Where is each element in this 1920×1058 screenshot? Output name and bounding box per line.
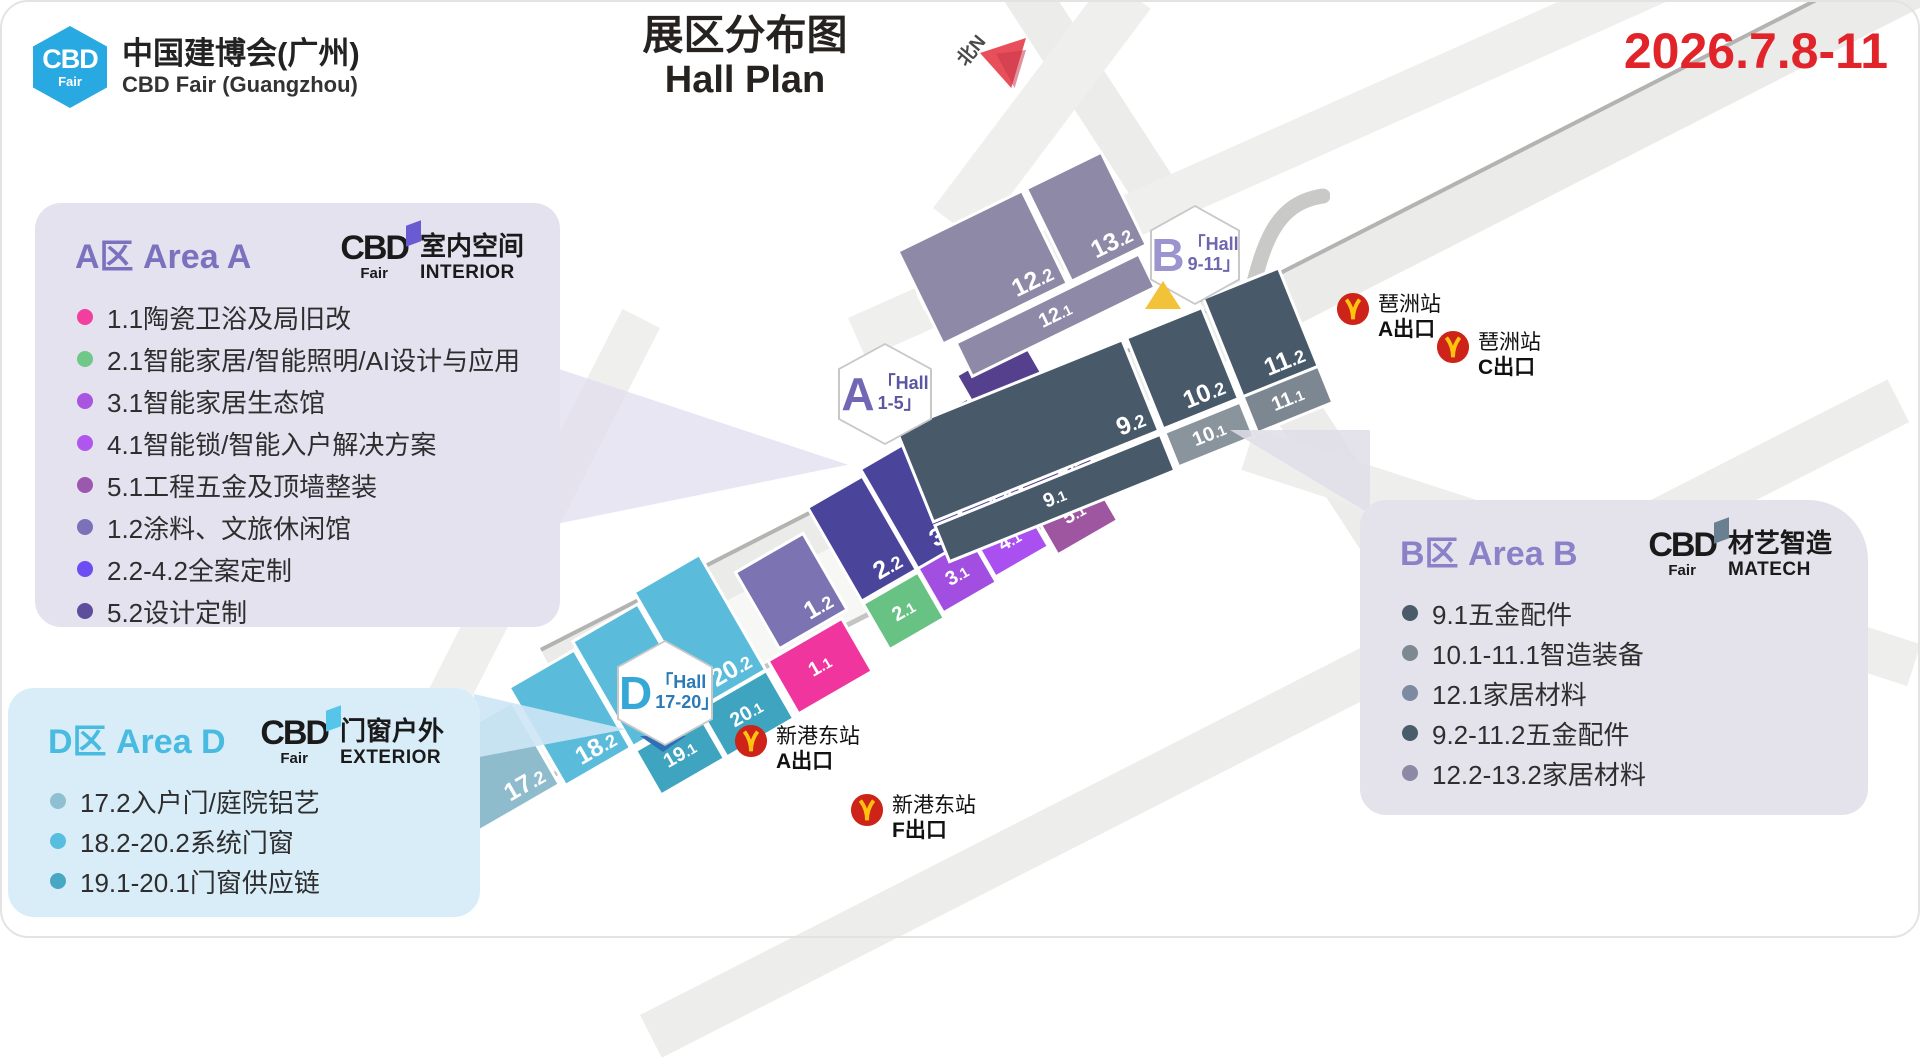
legend-list-area-a: 1.1陶瓷卫浴及局旧改2.1智能家居/智能照明/AI设计与应用3.1智能家居生态… xyxy=(35,290,560,632)
legend-label: 17.2入户门/庭院铝艺 xyxy=(80,783,320,820)
metro-icon xyxy=(850,793,884,827)
hall-label: 9.2 xyxy=(1113,407,1149,441)
brand-name-cn: 中国建博会(广州) xyxy=(122,36,360,72)
legend-dot-icon xyxy=(50,873,66,889)
badge-hall-a: A 「Hall 1-5」 xyxy=(838,343,932,445)
legend-item: 10.1-11.1智造装备 xyxy=(1402,633,1858,673)
station-name: 新港东站 xyxy=(892,793,976,818)
legend-dot-icon xyxy=(1402,765,1418,781)
hexagon-icon: A 「Hall 1-5」 xyxy=(838,343,932,445)
badge-hall-line2: 17-20」 xyxy=(655,693,711,713)
legend-item: 5.2设计定制 xyxy=(77,590,550,632)
legend-item: 12.1家居材料 xyxy=(1402,673,1858,713)
cbd-fair-text: Fair xyxy=(340,265,408,282)
sector-name-cn: 室内空间 xyxy=(420,231,524,262)
legend-item: 3.1智能家居生态馆 xyxy=(77,380,550,422)
cbd-fair-logo: CBD Fair xyxy=(33,26,107,108)
logo-fair-text: Fair xyxy=(58,75,82,88)
interior-logo: CBD Fair 室内空间 INTERIOR xyxy=(340,231,524,284)
station-exit: C出口 xyxy=(1478,355,1541,380)
hall-label: 10.1 xyxy=(1190,419,1229,450)
hall-label: 10.2 xyxy=(1180,374,1229,413)
metro-icon xyxy=(734,724,768,758)
legend-dot-icon xyxy=(77,603,93,619)
badge-hall-line1: 「Hall xyxy=(878,374,929,394)
brand-block: 中国建博会(广州) CBD Fair (Guangzhou) xyxy=(122,36,360,98)
legend-item: 17.2入户门/庭院铝艺 xyxy=(50,781,470,821)
legend-item: 19.1-20.1门窗供应链 xyxy=(50,861,470,901)
area-a-pointer-wedge xyxy=(556,368,848,524)
legend-label: 2.2-4.2全案定制 xyxy=(107,551,292,588)
legend-item: 9.2-11.2五金配件 xyxy=(1402,713,1858,753)
hall-label: 17.2 xyxy=(500,763,550,806)
sector-name-en: INTERIOR xyxy=(420,262,524,284)
logo-cbd-text: CBD xyxy=(42,46,98,73)
hall-label: 13.2 xyxy=(1087,222,1136,263)
legend-label: 5.1工程五金及顶墙整装 xyxy=(107,467,377,504)
legend-label: 18.2-20.2系统门窗 xyxy=(80,823,294,860)
panel-title: A区 Area A xyxy=(75,229,251,278)
hall-label: 2.1 xyxy=(889,596,919,625)
legend-dot-icon xyxy=(77,393,93,409)
legend-dot-icon xyxy=(77,519,93,535)
legend-label: 9.2-11.2五金配件 xyxy=(1432,715,1629,752)
flag-icon xyxy=(406,220,421,246)
hall-label: 12.1 xyxy=(1036,299,1076,332)
hall-label: 12.2 xyxy=(1008,261,1057,302)
badge-hall-line2: 1-5」 xyxy=(878,394,929,414)
panel-title: D区 Area D xyxy=(48,714,226,763)
badge-hall-d: D 「Hall 17-20」 xyxy=(617,640,713,746)
badge-hall-line2: 9-11」 xyxy=(1188,255,1239,275)
sector-name-cn: 门窗户外 xyxy=(340,716,444,747)
hall-label: 1.1 xyxy=(805,652,835,681)
legend-item: 1.2涂料、文旅休闲馆 xyxy=(77,506,550,548)
legend-item: 12.2-13.2家居材料 xyxy=(1402,753,1858,793)
page-title: 展区分布图 Hall Plan xyxy=(530,12,960,102)
event-date: 2026.7.8-11 xyxy=(1624,22,1888,80)
legend-label: 1.1陶瓷卫浴及局旧改 xyxy=(107,299,351,336)
legend-dot-icon xyxy=(77,435,93,451)
legend-item: 2.2-4.2全案定制 xyxy=(77,548,550,590)
station-pazhou-exit-a: 琶洲站 A出口 xyxy=(1336,292,1441,342)
cbd-wordmark: CBD xyxy=(340,231,408,265)
station-exit: A出口 xyxy=(776,749,860,774)
legend-item: 9.1五金配件 xyxy=(1402,593,1858,633)
hall-label: 11.1 xyxy=(1269,384,1307,415)
legend-panel-area-d: D区 Area D CBD Fair 门窗户外 EXTERIOR 17.2入户门… xyxy=(8,688,480,917)
flag-icon xyxy=(326,705,341,731)
station-exit: A出口 xyxy=(1378,317,1441,342)
flag-icon xyxy=(1714,517,1729,543)
legend-dot-icon xyxy=(1402,645,1418,661)
brand-name-en: CBD Fair (Guangzhou) xyxy=(122,72,360,98)
sector-name-en: EXTERIOR xyxy=(340,747,444,769)
legend-label: 5.2设计定制 xyxy=(107,593,247,630)
legend-item: 18.2-20.2系统门窗 xyxy=(50,821,470,861)
legend-item: 5.1工程五金及顶墙整装 xyxy=(77,464,550,506)
legend-label: 10.1-11.1智造装备 xyxy=(1432,635,1644,672)
legend-item: 2.1智能家居/智能照明/AI设计与应用 xyxy=(77,338,550,380)
legend-panel-area-b: B区 Area B CBD Fair 材艺智造 MATECH 9.1五金配件10… xyxy=(1360,500,1868,815)
legend-list-area-b: 9.1五金配件10.1-11.1智造装备12.1家居材料9.2-11.2五金配件… xyxy=(1360,587,1868,793)
legend-list-area-d: 17.2入户门/庭院铝艺18.2-20.2系统门窗19.1-20.1门窗供应链 xyxy=(8,775,480,901)
legend-dot-icon xyxy=(1402,685,1418,701)
exterior-logo: CBD Fair 门窗户外 EXTERIOR xyxy=(260,716,444,769)
station-name: 琶洲站 xyxy=(1478,330,1541,355)
legend-label: 19.1-20.1门窗供应链 xyxy=(80,863,320,900)
badge-letter: D xyxy=(619,670,652,716)
sector-name-en: MATECH xyxy=(1728,559,1832,581)
legend-dot-icon xyxy=(77,561,93,577)
page-title-cn: 展区分布图 xyxy=(530,12,960,59)
cbd-fair-text: Fair xyxy=(1648,562,1716,579)
hall-label: 3.1 xyxy=(942,561,972,590)
metro-icon xyxy=(1336,292,1370,326)
badge-letter: A xyxy=(841,371,874,417)
legend-panel-area-a: A区 Area A CBD Fair 室内空间 INTERIOR 1.1陶瓷卫浴… xyxy=(35,203,560,627)
metro-icon xyxy=(1436,330,1470,364)
legend-label: 3.1智能家居生态馆 xyxy=(107,383,325,420)
legend-label: 2.1智能家居/智能照明/AI设计与应用 xyxy=(107,341,520,378)
badge-letter: B xyxy=(1151,232,1184,278)
legend-dot-icon xyxy=(77,477,93,493)
station-name: 琶洲站 xyxy=(1378,292,1441,317)
badge-hall-line1: 「Hall xyxy=(1188,235,1239,255)
legend-dot-icon xyxy=(1402,605,1418,621)
hall-label: 9.1 xyxy=(1040,484,1069,511)
panel-title: B区 Area B xyxy=(1400,526,1578,575)
page-title-en: Hall Plan xyxy=(530,59,960,102)
legend-label: 4.1智能锁/智能入户解决方案 xyxy=(107,425,436,462)
legend-dot-icon xyxy=(1402,725,1418,741)
station-pazhou-exit-c: 琶洲站 C出口 xyxy=(1436,330,1541,380)
station-exit: F出口 xyxy=(892,818,976,843)
legend-dot-icon xyxy=(77,309,93,325)
legend-label: 12.2-13.2家居材料 xyxy=(1432,755,1646,792)
legend-dot-icon xyxy=(50,793,66,809)
legend-label: 12.1家居材料 xyxy=(1432,675,1587,712)
matech-logo: CBD Fair 材艺智造 MATECH xyxy=(1648,528,1832,581)
station-xingangdong-exit-a: 新港东站 A出口 xyxy=(734,724,860,774)
legend-label: 9.1五金配件 xyxy=(1432,595,1572,632)
station-xingangdong-exit-f: 新港东站 F出口 xyxy=(850,793,976,843)
cbd-wordmark: CBD xyxy=(1648,528,1716,562)
cbd-wordmark: CBD xyxy=(260,716,328,750)
legend-dot-icon xyxy=(50,833,66,849)
legend-item: 1.1陶瓷卫浴及局旧改 xyxy=(77,296,550,338)
legend-item: 4.1智能锁/智能入户解决方案 xyxy=(77,422,550,464)
cbd-fair-text: Fair xyxy=(260,750,328,767)
legend-label: 1.2涂料、文旅休闲馆 xyxy=(107,509,351,546)
station-name: 新港东站 xyxy=(776,724,860,749)
badge-hall-line1: 「Hall xyxy=(655,673,711,693)
legend-dot-icon xyxy=(77,351,93,367)
sector-name-cn: 材艺智造 xyxy=(1728,528,1832,559)
hexagon-icon: D 「Hall 17-20」 xyxy=(617,640,713,746)
